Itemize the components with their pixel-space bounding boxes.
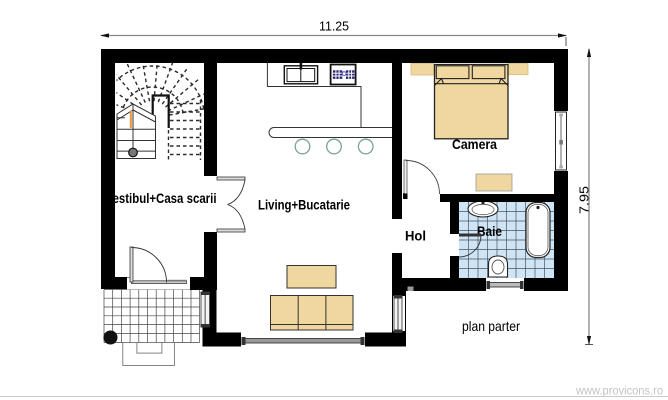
svg-text:Hol: Hol: [405, 228, 426, 244]
svg-text:Camera: Camera: [452, 136, 497, 152]
svg-text:Vestibul+Casa scarii: Vestibul+Casa scarii: [106, 190, 217, 206]
svg-text:11.25: 11.25: [319, 19, 349, 34]
svg-text:Living+Bucatarie: Living+Bucatarie: [258, 197, 350, 213]
svg-text:www.provicons.ro: www.provicons.ro: [575, 386, 663, 398]
svg-text:7.95: 7.95: [577, 186, 592, 214]
svg-text:plan parter: plan parter: [462, 318, 520, 334]
